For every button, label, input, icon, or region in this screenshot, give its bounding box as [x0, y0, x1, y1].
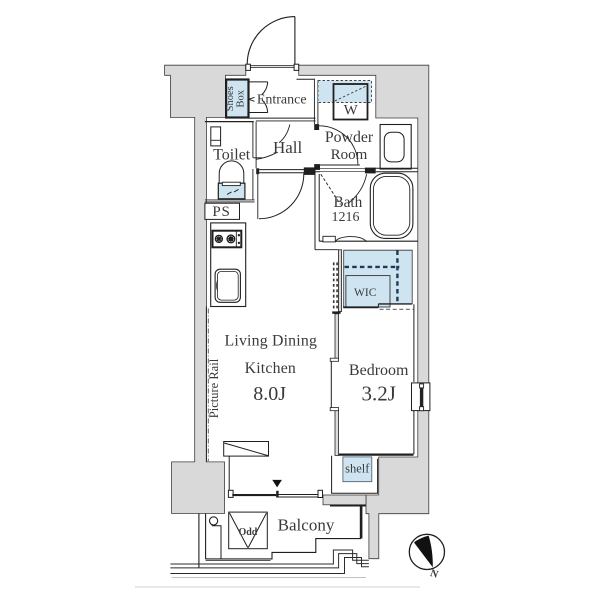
svg-text:3.2J: 3.2J: [361, 381, 395, 405]
svg-text:8.0J: 8.0J: [253, 383, 286, 405]
svg-text:Kitchen: Kitchen: [245, 360, 296, 377]
svg-text:1216: 1216: [332, 210, 360, 225]
svg-text:Odd: Odd: [238, 527, 257, 538]
svg-text:WIC: WIC: [354, 287, 377, 299]
svg-text:Bath: Bath: [333, 194, 362, 211]
svg-text:Shoes: Shoes: [225, 86, 236, 111]
svg-text:Living Dining: Living Dining: [225, 332, 318, 349]
svg-text:Balcony: Balcony: [278, 515, 335, 534]
svg-text:Room: Room: [331, 147, 368, 163]
svg-text:Entrance: Entrance: [257, 93, 307, 108]
svg-text:PS: PS: [212, 204, 230, 220]
svg-text:Box: Box: [236, 89, 247, 107]
svg-text:Hall: Hall: [273, 138, 303, 157]
svg-text:shelf: shelf: [345, 461, 370, 475]
svg-text:W: W: [344, 103, 359, 119]
svg-text:Bedroom: Bedroom: [349, 362, 409, 379]
svg-text:Powder: Powder: [325, 129, 374, 146]
svg-text:Picture Rail: Picture Rail: [207, 358, 221, 418]
